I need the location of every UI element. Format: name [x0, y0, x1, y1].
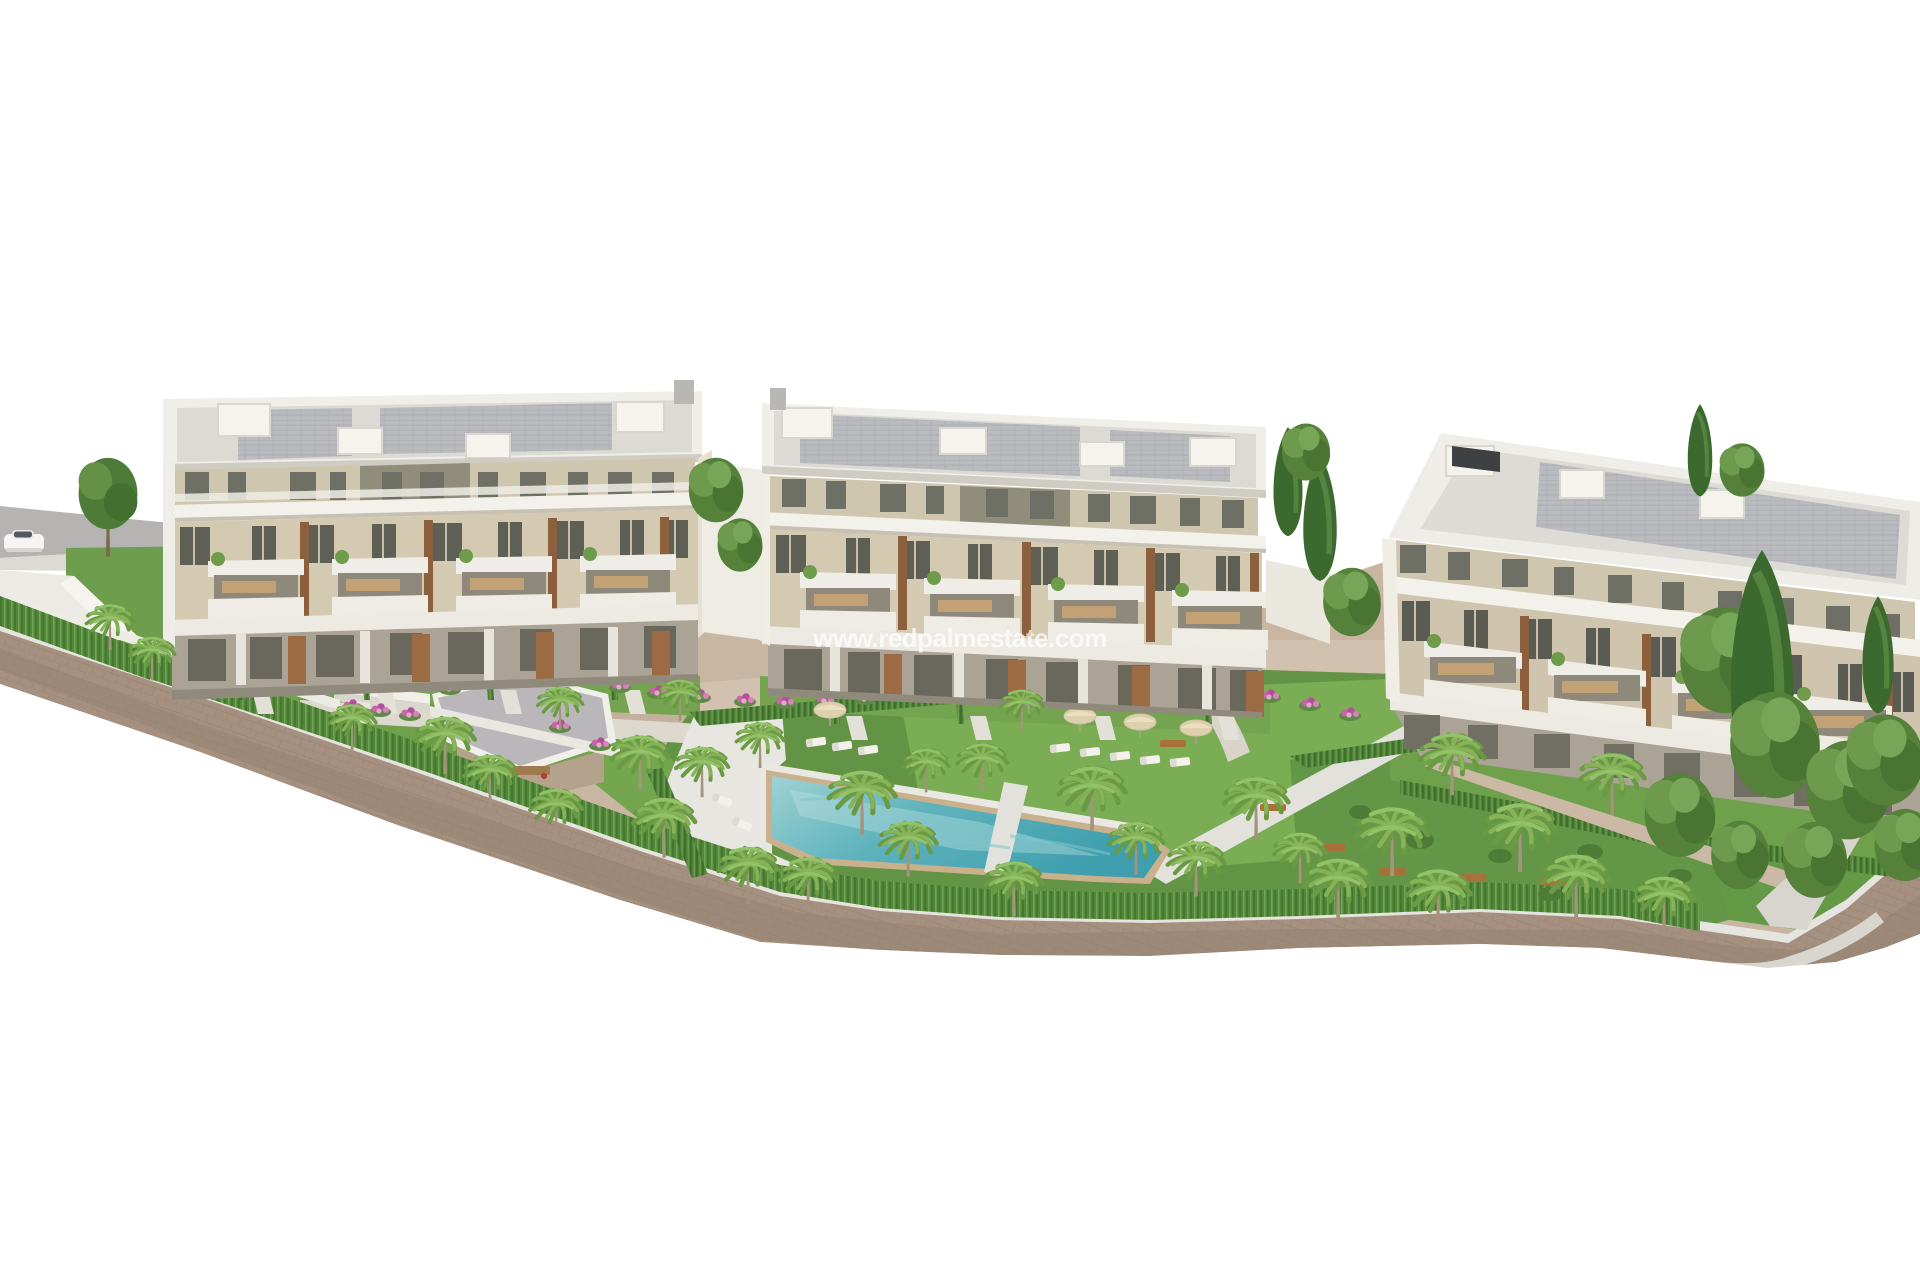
- svg-text:www.redpalmestate.com: www.redpalmestate.com: [812, 623, 1106, 653]
